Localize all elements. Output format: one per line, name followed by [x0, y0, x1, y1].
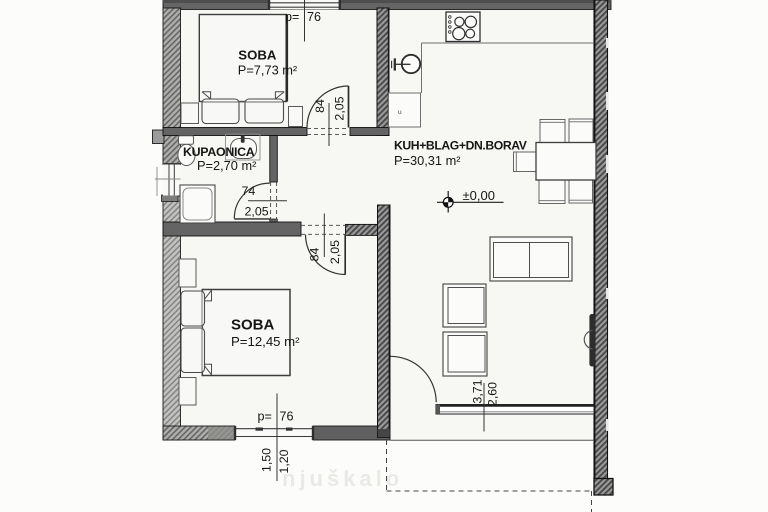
svg-text:KUPAONICA: KUPAONICA — [183, 145, 255, 159]
svg-text:1,20: 1,20 — [277, 449, 291, 473]
svg-text:p=: p= — [258, 410, 272, 424]
svg-text:2,60: 2,60 — [485, 382, 499, 406]
svg-text:P=12,45 m²: P=12,45 m² — [231, 334, 300, 349]
svg-text:KUH+BLAG+DN.BORAV: KUH+BLAG+DN.BORAV — [394, 139, 528, 153]
svg-text:74: 74 — [242, 184, 256, 198]
svg-text:P=2,70 m²: P=2,70 m² — [197, 158, 257, 173]
svg-text:P=7,73 m²: P=7,73 m² — [238, 62, 298, 77]
svg-text:SOBA: SOBA — [231, 317, 275, 334]
svg-text:84: 84 — [313, 99, 327, 113]
svg-text:76: 76 — [307, 10, 321, 24]
svg-text:76: 76 — [280, 410, 294, 424]
svg-text:84: 84 — [308, 248, 322, 262]
svg-text:3,71: 3,71 — [471, 379, 485, 403]
svg-text:SOBA: SOBA — [238, 48, 277, 63]
svg-text:P=30,31 m²: P=30,31 m² — [394, 153, 461, 168]
svg-text:±0,00: ±0,00 — [463, 188, 495, 203]
svg-text:2,05: 2,05 — [245, 205, 269, 219]
svg-text:2,05: 2,05 — [333, 96, 347, 120]
svg-text:njuškalo: njuškalo — [282, 466, 403, 491]
svg-text:p=: p= — [285, 10, 299, 24]
svg-text:u: u — [398, 109, 402, 116]
svg-text:2,05: 2,05 — [328, 240, 342, 264]
svg-text:1,50: 1,50 — [260, 448, 274, 472]
